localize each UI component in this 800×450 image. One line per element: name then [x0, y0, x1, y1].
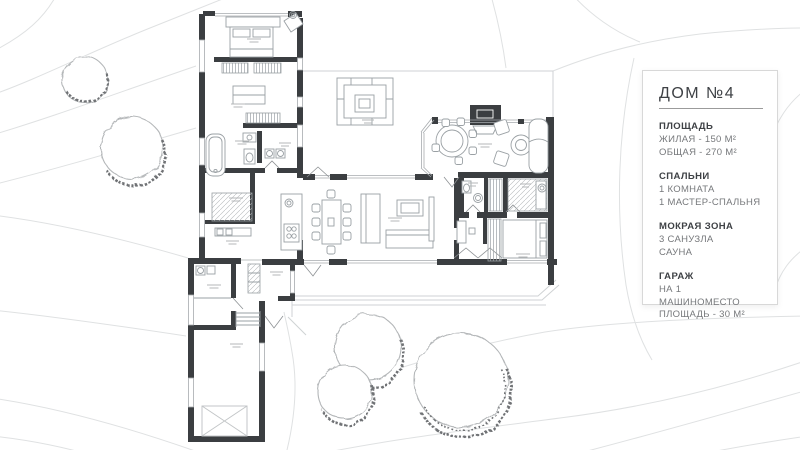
- guest-bedroom: [457, 219, 547, 261]
- section-line: ОБЩАЯ - 270 М²: [659, 147, 763, 160]
- chaise-lounge: [529, 119, 548, 173]
- closet: [212, 193, 252, 221]
- garage-parking-spot: [202, 406, 247, 436]
- sofa-chaise: [361, 194, 380, 243]
- section-line: САУНА: [659, 247, 763, 260]
- floorplan-page: ДОМ №4 ПЛОЩАДЬ ЖИЛАЯ - 150 М² ОБЩАЯ - 27…: [0, 0, 800, 450]
- section-line: 1 МАСТЕР-СПАЛЬНЯ: [659, 197, 763, 210]
- desk: [457, 221, 466, 243]
- deck-steps: [288, 280, 559, 335]
- page-title: ДОМ №4: [659, 85, 763, 103]
- sofa: [386, 230, 433, 248]
- shelf-column: [489, 179, 502, 211]
- sauna-heater: [538, 184, 546, 192]
- door-swings: [233, 161, 520, 328]
- kitchen: [281, 194, 302, 250]
- section-line: 1 КОМНАТА: [659, 184, 763, 197]
- headboard: [226, 17, 280, 27]
- section-heading: ГАРАЖ: [659, 271, 763, 282]
- master-bedroom-furniture: [226, 12, 303, 58]
- dining-table: [322, 200, 341, 244]
- section-heading: МОКРАЯ ЗОНА: [659, 221, 763, 232]
- spec-section-area: ПЛОЩАДЬ ЖИЛАЯ - 150 М² ОБЩАЯ - 270 М²: [659, 121, 763, 159]
- laundry-shelves: [248, 264, 260, 293]
- lounge-chair: [493, 150, 509, 166]
- section-line: НА 1 МАШИНОМЕСТО: [659, 284, 763, 309]
- tv-console: [429, 197, 434, 241]
- hearth: [473, 126, 497, 134]
- tree: [101, 117, 166, 186]
- spec-section-wet-zone: МОКРАЯ ЗОНА 3 САНУЗЛА САУНА: [659, 221, 763, 259]
- spec-section-garage: ГАРАЖ НА 1 МАШИНОМЕСТО ПЛОЩАДЬ - 30 М²: [659, 271, 763, 322]
- round-sink: [474, 194, 483, 203]
- side-table: [511, 135, 531, 155]
- section-heading: СПАЛЬНИ: [659, 171, 763, 182]
- terrace-lounge-set: [337, 78, 393, 125]
- outdoor-table: [355, 95, 374, 112]
- tree: [414, 333, 511, 438]
- section-line: 3 САНУЗЛА: [659, 234, 763, 247]
- section-line: ПЛОЩАДЬ - 30 М²: [659, 309, 763, 322]
- section-heading: ПЛОЩАДЬ: [659, 121, 763, 132]
- tree: [318, 365, 374, 425]
- title-divider: [659, 108, 763, 109]
- garage-wing-interior: [194, 264, 260, 436]
- entry-stairs: [236, 311, 260, 327]
- spec-section-bedrooms: СПАЛЬНИ 1 КОМНАТА 1 МАСТЕР-СПАЛЬНЯ: [659, 171, 763, 209]
- hall-closets: [212, 193, 252, 236]
- wardrobe-column: [488, 219, 501, 261]
- wardrobe-room: [222, 63, 281, 123]
- tree: [62, 57, 108, 103]
- section-line: ЖИЛАЯ - 150 М²: [659, 134, 763, 147]
- dining-area: [312, 190, 351, 254]
- info-panel: ДОМ №4 ПЛОЩАДЬ ЖИЛАЯ - 150 М² ОБЩАЯ - 27…: [642, 70, 778, 305]
